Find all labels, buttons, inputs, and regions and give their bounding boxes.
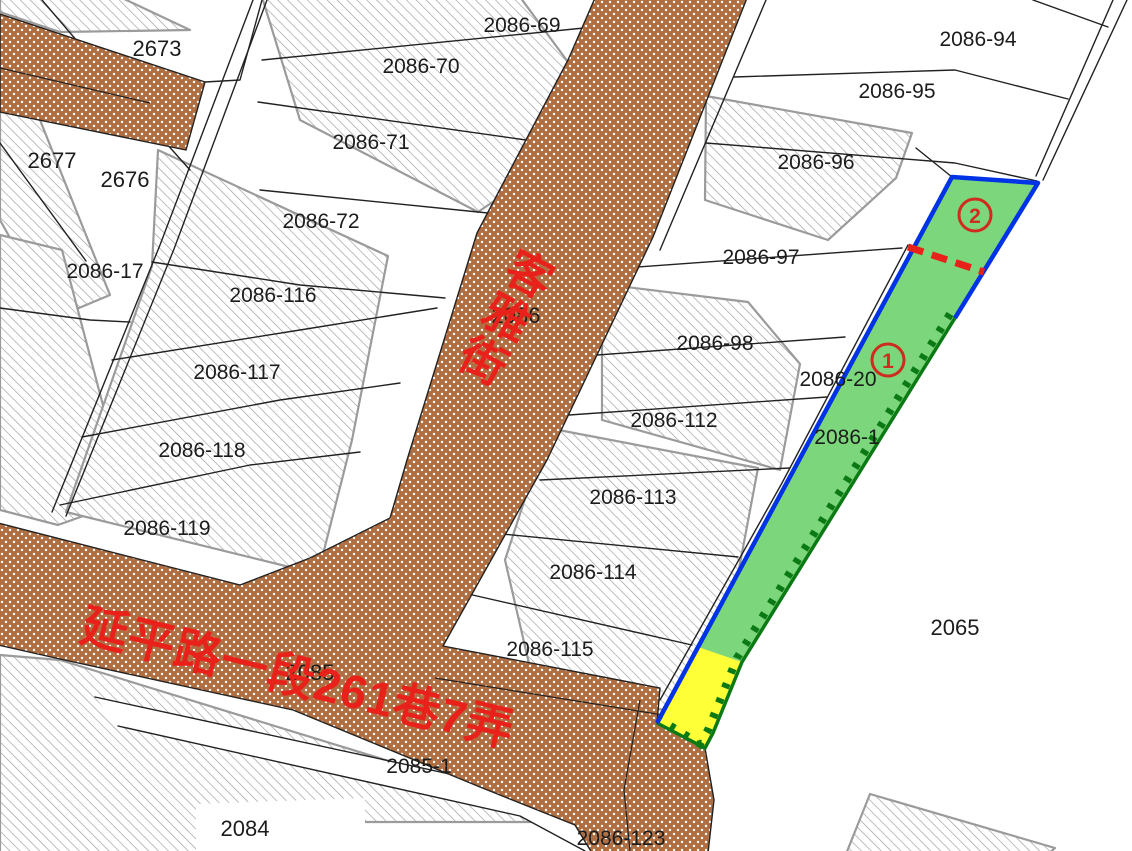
parcel-label-2086-98: 2086-98	[676, 332, 753, 355]
parcel-label-2086-17: 2086-17	[66, 260, 143, 283]
marker-2-number: 2	[969, 205, 981, 228]
parcel-label-2086-114: 2086-114	[549, 561, 637, 584]
parcel-label-2086-1: 2086-1	[814, 426, 879, 449]
parcel-label-2086-112: 2086-112	[630, 409, 717, 432]
parcel-label-2086-94: 2086-94	[939, 28, 1016, 51]
parcel-label-2086-20: 2086-20	[799, 368, 876, 391]
parcel-label-2086-95: 2086-95	[858, 80, 935, 103]
parcel-label-2086-119: 2086-119	[123, 517, 210, 540]
parcel-label-2086-97: 2086-97	[722, 246, 799, 269]
parcel-label-2065: 2065	[931, 615, 980, 640]
parcel-label-2086-123: 2086-123	[577, 827, 666, 850]
parcel-label-2086-117: 2086-117	[193, 361, 280, 384]
parcel-label-2086-118: 2086-118	[158, 439, 245, 462]
map-canvas: 2 1 2673 2086-69 2086-70 2086-71 2086-72…	[0, 0, 1132, 851]
parcel-label-2677: 2677	[28, 148, 77, 173]
parcel-label-2086-71: 2086-71	[332, 131, 409, 154]
parcel-label-2086-72: 2086-72	[282, 210, 359, 233]
parcel-label-2086-116: 2086-116	[229, 284, 316, 307]
parcel-label-2086-70: 2086-70	[382, 55, 459, 78]
marker-1-number: 1	[882, 350, 894, 373]
parcel-label-2085-1: 2085-1	[386, 755, 451, 778]
parcel-label-2086-96: 2086-96	[777, 151, 854, 174]
parcel-label-2084: 2084	[221, 816, 270, 841]
parcel-label-2086-69: 2086-69	[483, 14, 560, 37]
parcel-label-2086-113: 2086-113	[589, 486, 676, 509]
parcel-label-2673: 2673	[133, 36, 182, 61]
parcel-label-2086-115: 2086-115	[506, 638, 593, 661]
cadastral-map: 2 1 2673 2086-69 2086-70 2086-71 2086-72…	[0, 0, 1132, 851]
parcel-label-2676: 2676	[101, 167, 150, 192]
